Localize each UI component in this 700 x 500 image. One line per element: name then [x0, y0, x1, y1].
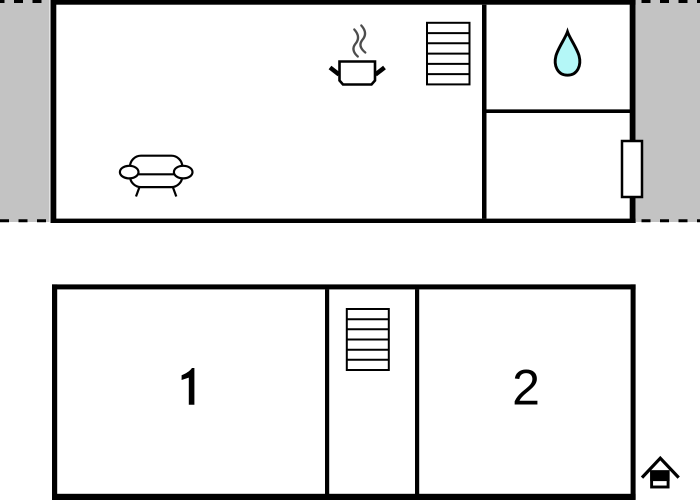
svg-text:2: 2: [512, 359, 540, 415]
